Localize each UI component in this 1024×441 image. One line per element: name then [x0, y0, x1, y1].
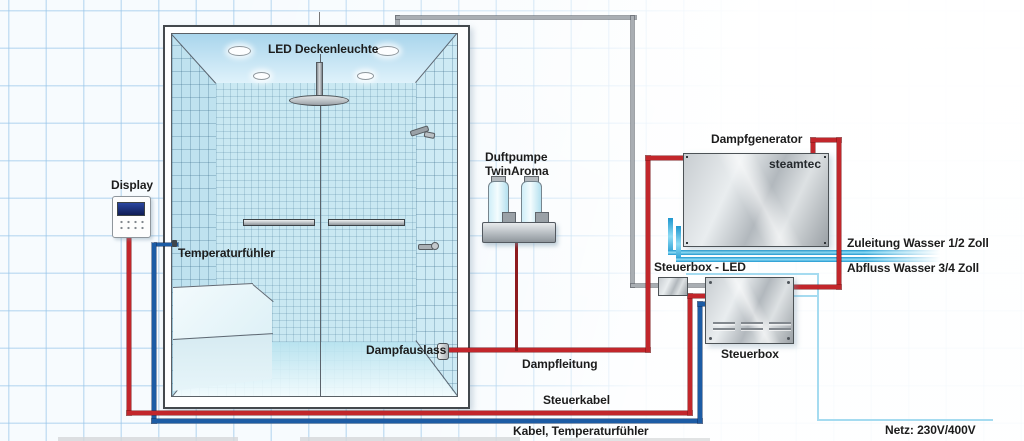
generator-pipe-segment — [791, 285, 841, 289]
label-water-supply: Zuleitung Wasser 1/2 Zoll — [847, 236, 989, 250]
screw — [709, 281, 712, 284]
label-display: Display — [111, 178, 153, 192]
steam-generator-unit: steamtec — [683, 153, 829, 247]
label-temp-cable: Kabel, Temperaturfühler — [513, 424, 649, 438]
water-supply-pipe — [668, 250, 940, 255]
label-steam-pipe: Dampfleitung — [522, 357, 597, 371]
display-keypad — [118, 219, 144, 232]
label-control-cable: Steuerkabel — [543, 393, 610, 407]
control-cable-segment — [127, 232, 131, 415]
corner-mark — [686, 242, 688, 244]
led-cable-segment — [396, 16, 636, 19]
control-cable-segment — [688, 294, 692, 415]
label-control-box: Steuerbox — [721, 347, 779, 361]
corner-mark — [824, 242, 826, 244]
led-light — [228, 46, 251, 56]
screw — [787, 337, 790, 340]
screw — [709, 337, 712, 340]
screw — [787, 281, 790, 284]
label-steam-generator: Dampfgenerator — [711, 132, 802, 146]
label-mains: Netz: 230V/400V — [885, 423, 976, 437]
display-unit — [112, 196, 151, 238]
label-steam-outlet: Dampfauslass — [366, 343, 446, 357]
door-handle-left — [243, 219, 315, 226]
roof-line — [319, 12, 320, 25]
aroma-pump-unit — [480, 172, 558, 242]
led-light — [253, 72, 270, 80]
temp-cable-segment — [152, 419, 702, 423]
corner-mark — [686, 156, 688, 158]
shower-faucet-knob — [431, 242, 439, 250]
vent-slots — [741, 322, 763, 331]
mains-line-segment — [791, 295, 819, 297]
mains-line-segment — [817, 273, 819, 421]
vent-slots — [769, 322, 791, 331]
tile-cap — [300, 437, 520, 441]
label-aroma-pump-2: TwinAroma — [485, 164, 549, 178]
corner-mark — [824, 156, 826, 158]
diagram-canvas: steamtec LED Deckenleuchte Display Tempe… — [0, 0, 1024, 441]
rain-shower-head — [289, 95, 349, 106]
steam-pipe-segment — [646, 156, 684, 160]
mains-line-segment — [817, 419, 993, 421]
temp-cable-segment — [152, 243, 156, 423]
led-cable-segment — [686, 284, 707, 287]
door-handle-right — [328, 219, 405, 226]
label-control-box-led: Steuerbox - LED — [654, 260, 746, 274]
temperature-sensor — [172, 240, 177, 247]
led-cable-segment — [631, 284, 659, 287]
control-box-unit — [705, 277, 794, 344]
brand-text: steamtec — [769, 157, 821, 171]
tile-cap — [58, 437, 238, 441]
steam-pipe-segment — [448, 348, 650, 352]
vent-slots — [713, 322, 735, 331]
led-cable-segment — [631, 16, 634, 287]
display-screen — [117, 202, 145, 216]
aroma-pump-base — [482, 222, 556, 243]
led-light — [357, 72, 374, 80]
led-light — [376, 46, 399, 56]
label-aroma-pump-1: Duftpumpe — [485, 150, 547, 164]
control-cable-segment — [127, 411, 692, 415]
label-water-drain: Abfluss Wasser 3/4 Zoll — [847, 261, 979, 275]
generator-pipe-segment — [837, 138, 841, 289]
aroma-hose — [515, 240, 518, 351]
label-temperature-sensor: Temperaturfühler — [178, 246, 275, 260]
metal-sheen — [706, 278, 793, 343]
label-led-ceiling: LED Deckenleuchte — [268, 42, 378, 56]
temp-cable-segment — [698, 302, 702, 423]
steam-pipe-segment — [646, 156, 650, 352]
control-box-led-unit — [658, 277, 688, 296]
